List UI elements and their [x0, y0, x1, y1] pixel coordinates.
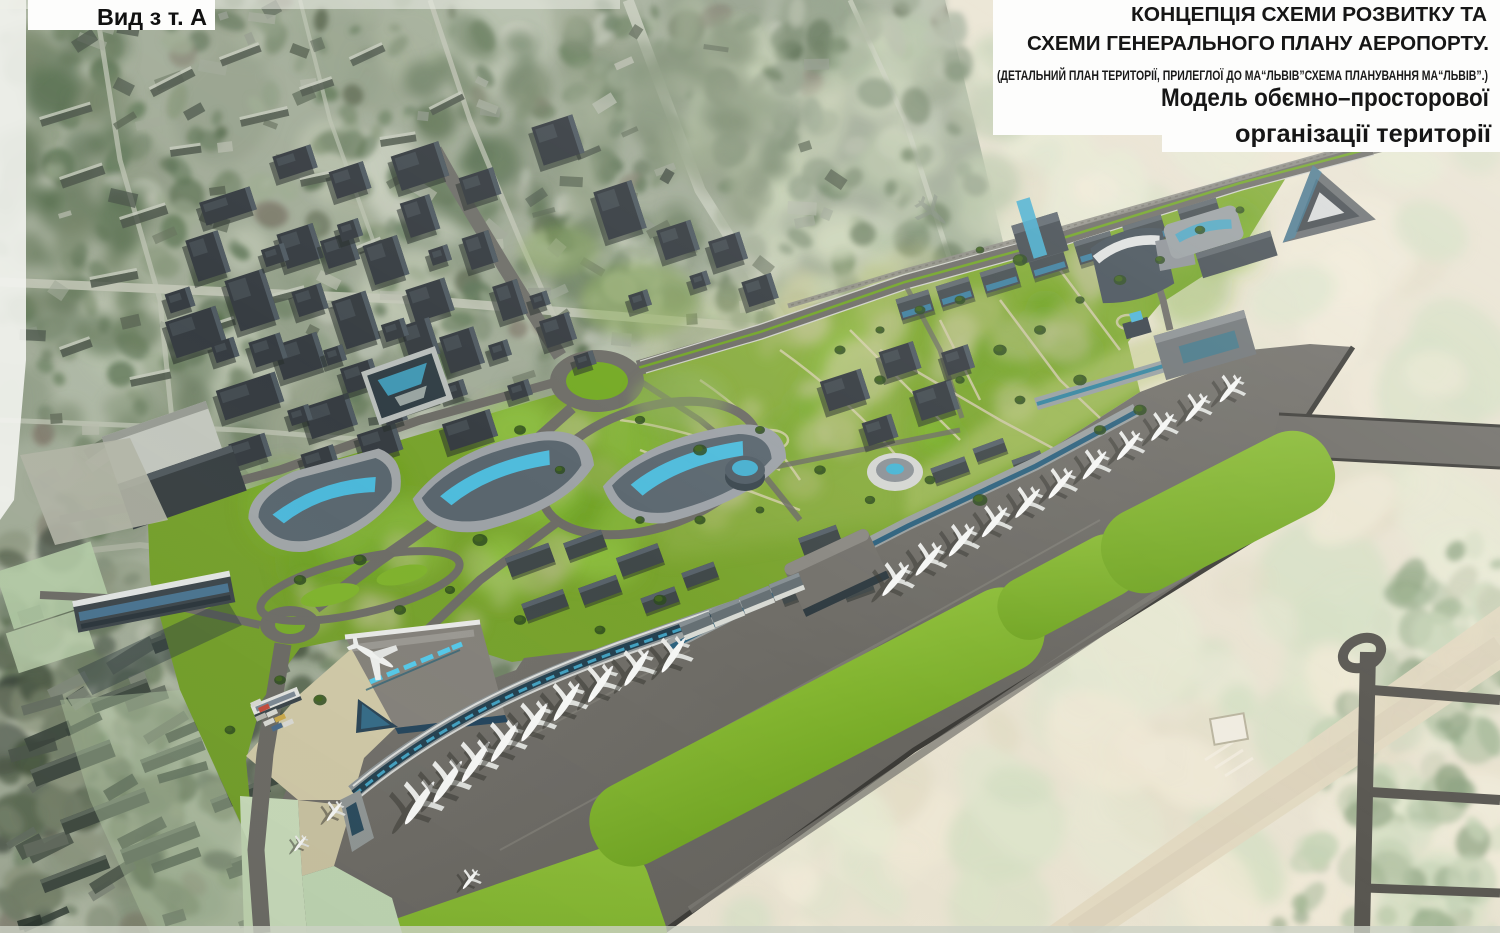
svg-text:КОНЦЕПЦІЯ СХЕМИ РОЗВИТКУ ТА: КОНЦЕПЦІЯ СХЕМИ РОЗВИТКУ ТА	[1131, 4, 1487, 26]
svg-text:(ДЕТАЛЬНИЙ ПЛАН ТЕРИТОРІЇ, ПРИ: (ДЕТАЛЬНИЙ ПЛАН ТЕРИТОРІЇ, ПРИЛЕГЛОЇ ДО …	[997, 66, 1488, 83]
svg-text:організації території: організації території	[1235, 120, 1492, 148]
svg-text:СХЕМИ ГЕНЕРАЛЬНОГО ПЛАНУ АЕРОП: СХЕМИ ГЕНЕРАЛЬНОГО ПЛАНУ АЕРОПОРТУ.	[1027, 33, 1489, 55]
svg-text:Модель обємно–просторової: Модель обємно–просторової	[1161, 84, 1490, 112]
svg-text:Вид з т. А: Вид з т. А	[97, 4, 207, 30]
